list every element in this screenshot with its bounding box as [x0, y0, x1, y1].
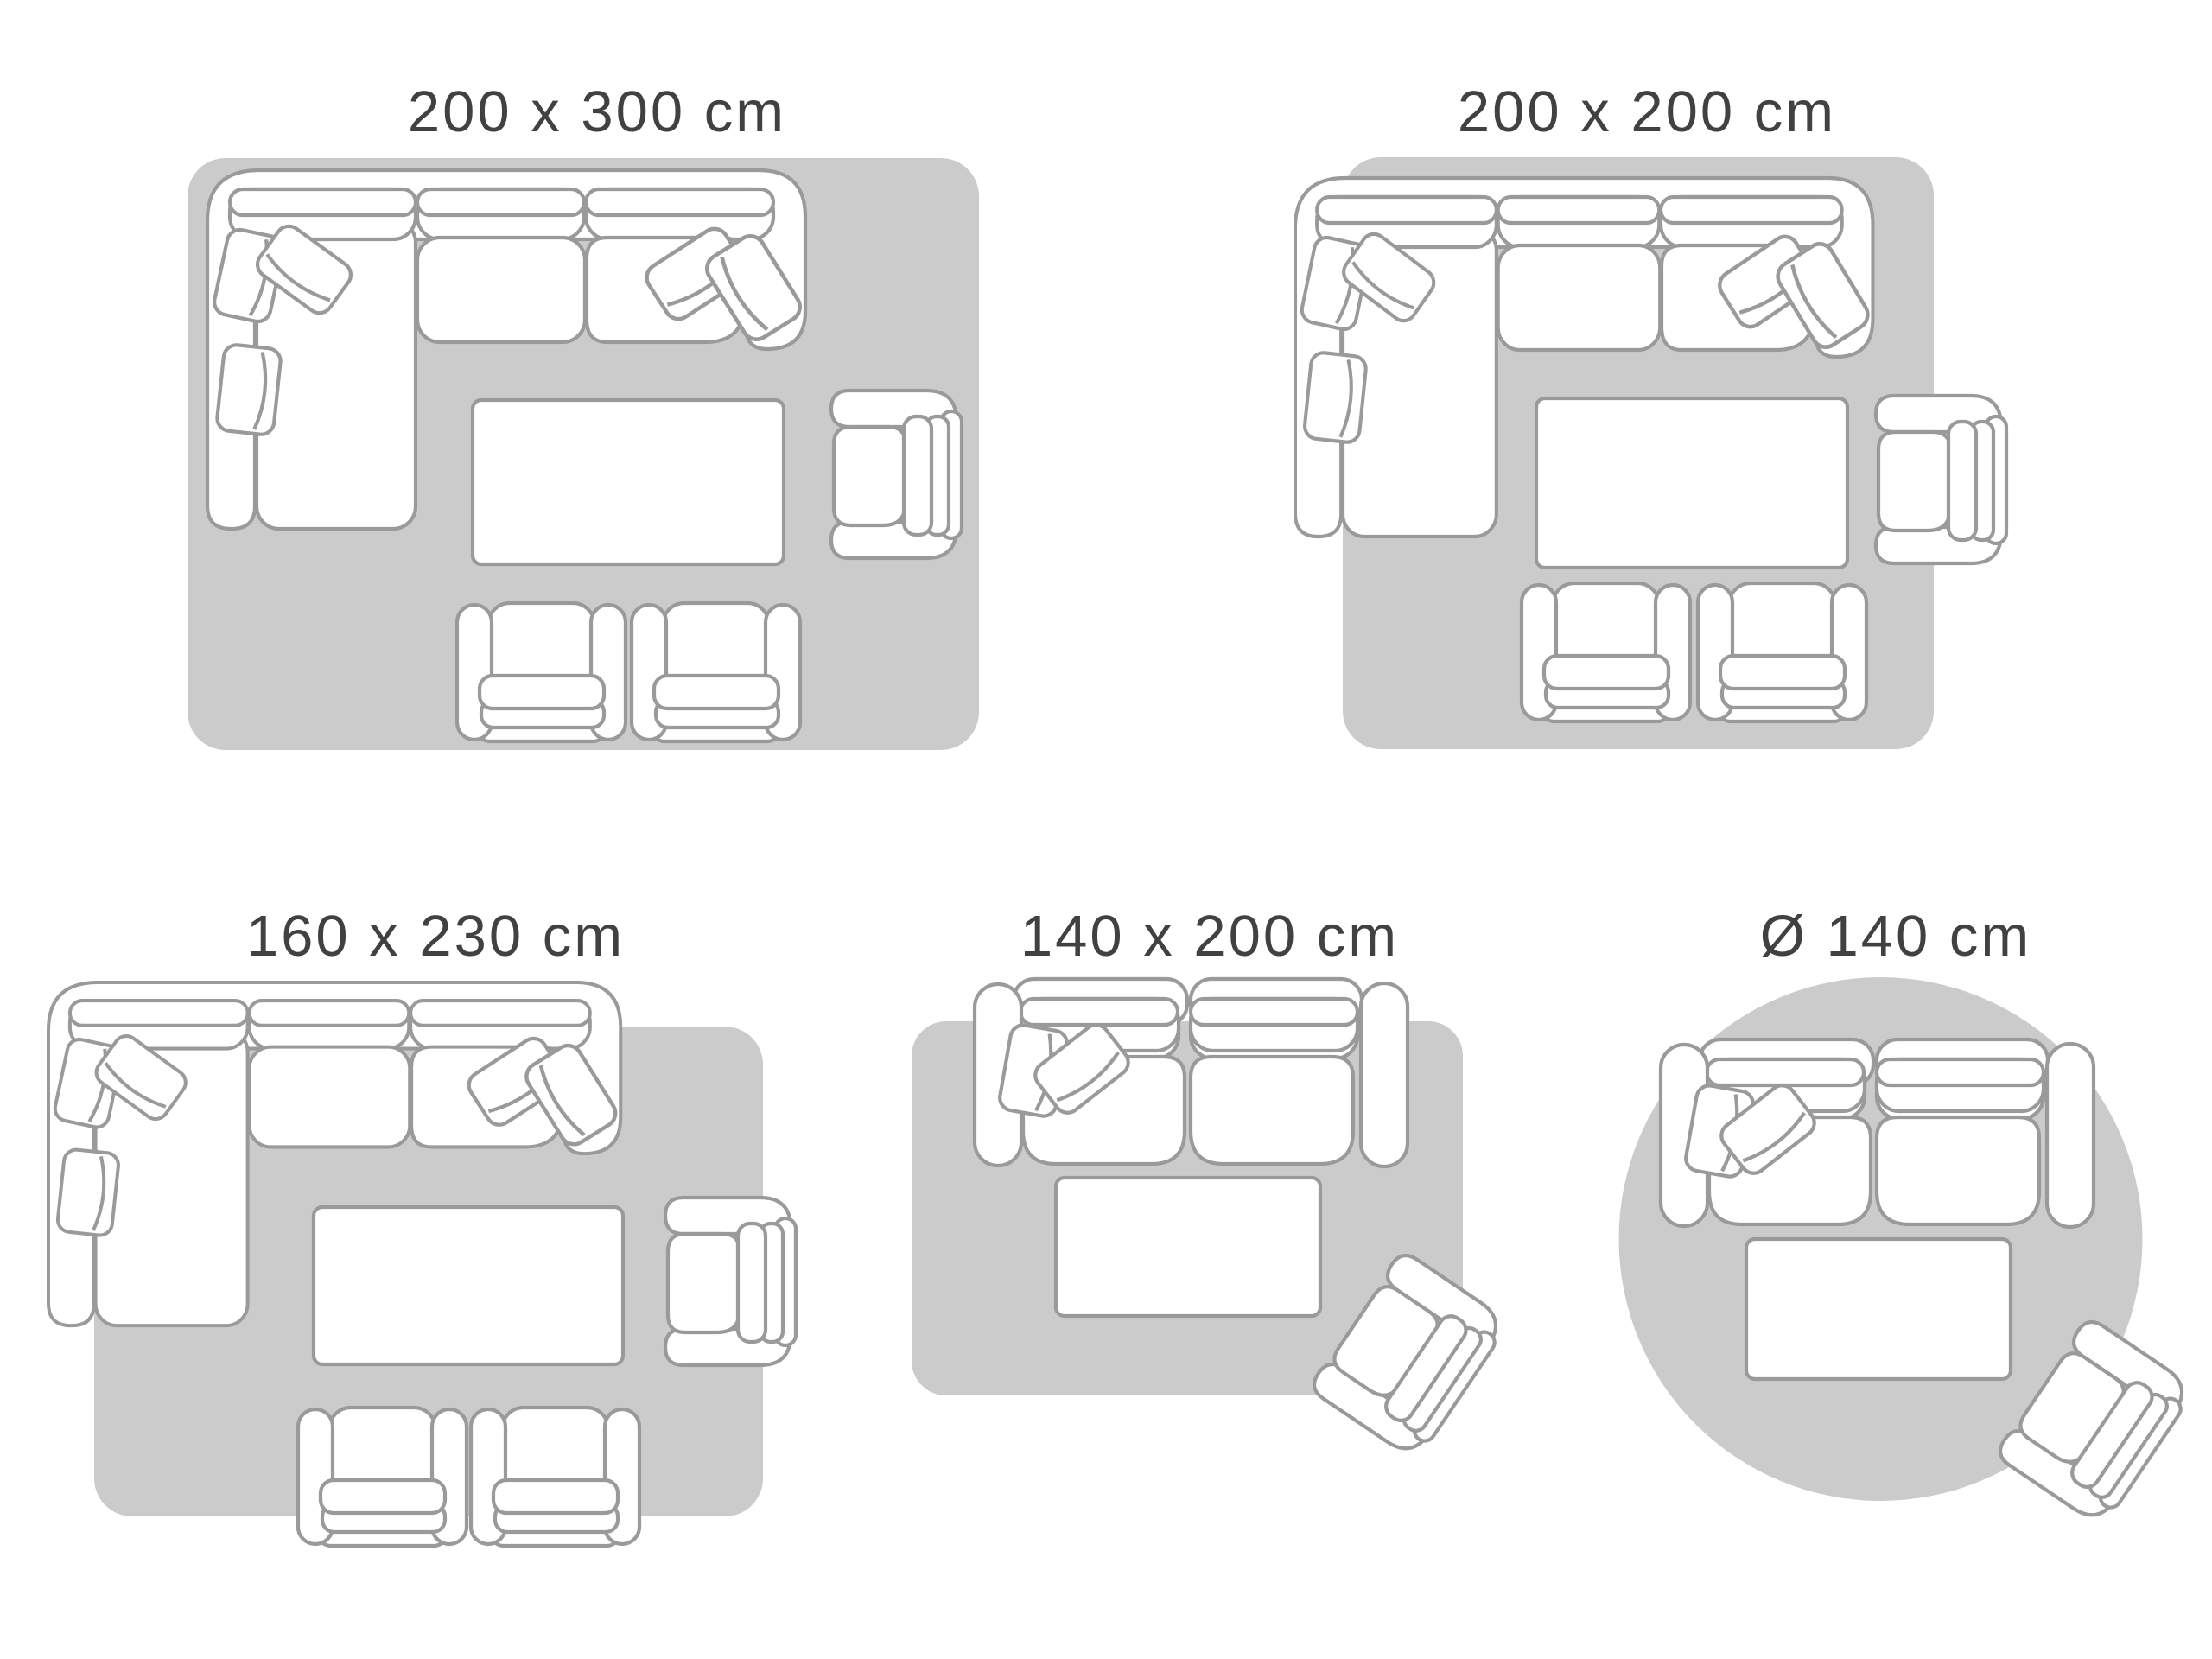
- svg-text:140 x 200 cm: 140 x 200 cm: [1020, 904, 1399, 969]
- svg-text:Ø 140 cm: Ø 140 cm: [1760, 904, 2031, 969]
- svg-text:200 x 200 cm: 200 x 200 cm: [1458, 79, 1836, 144]
- svg-text:160 x 230 cm: 160 x 230 cm: [246, 904, 625, 969]
- svg-text:200 x 300 cm: 200 x 300 cm: [408, 79, 786, 144]
